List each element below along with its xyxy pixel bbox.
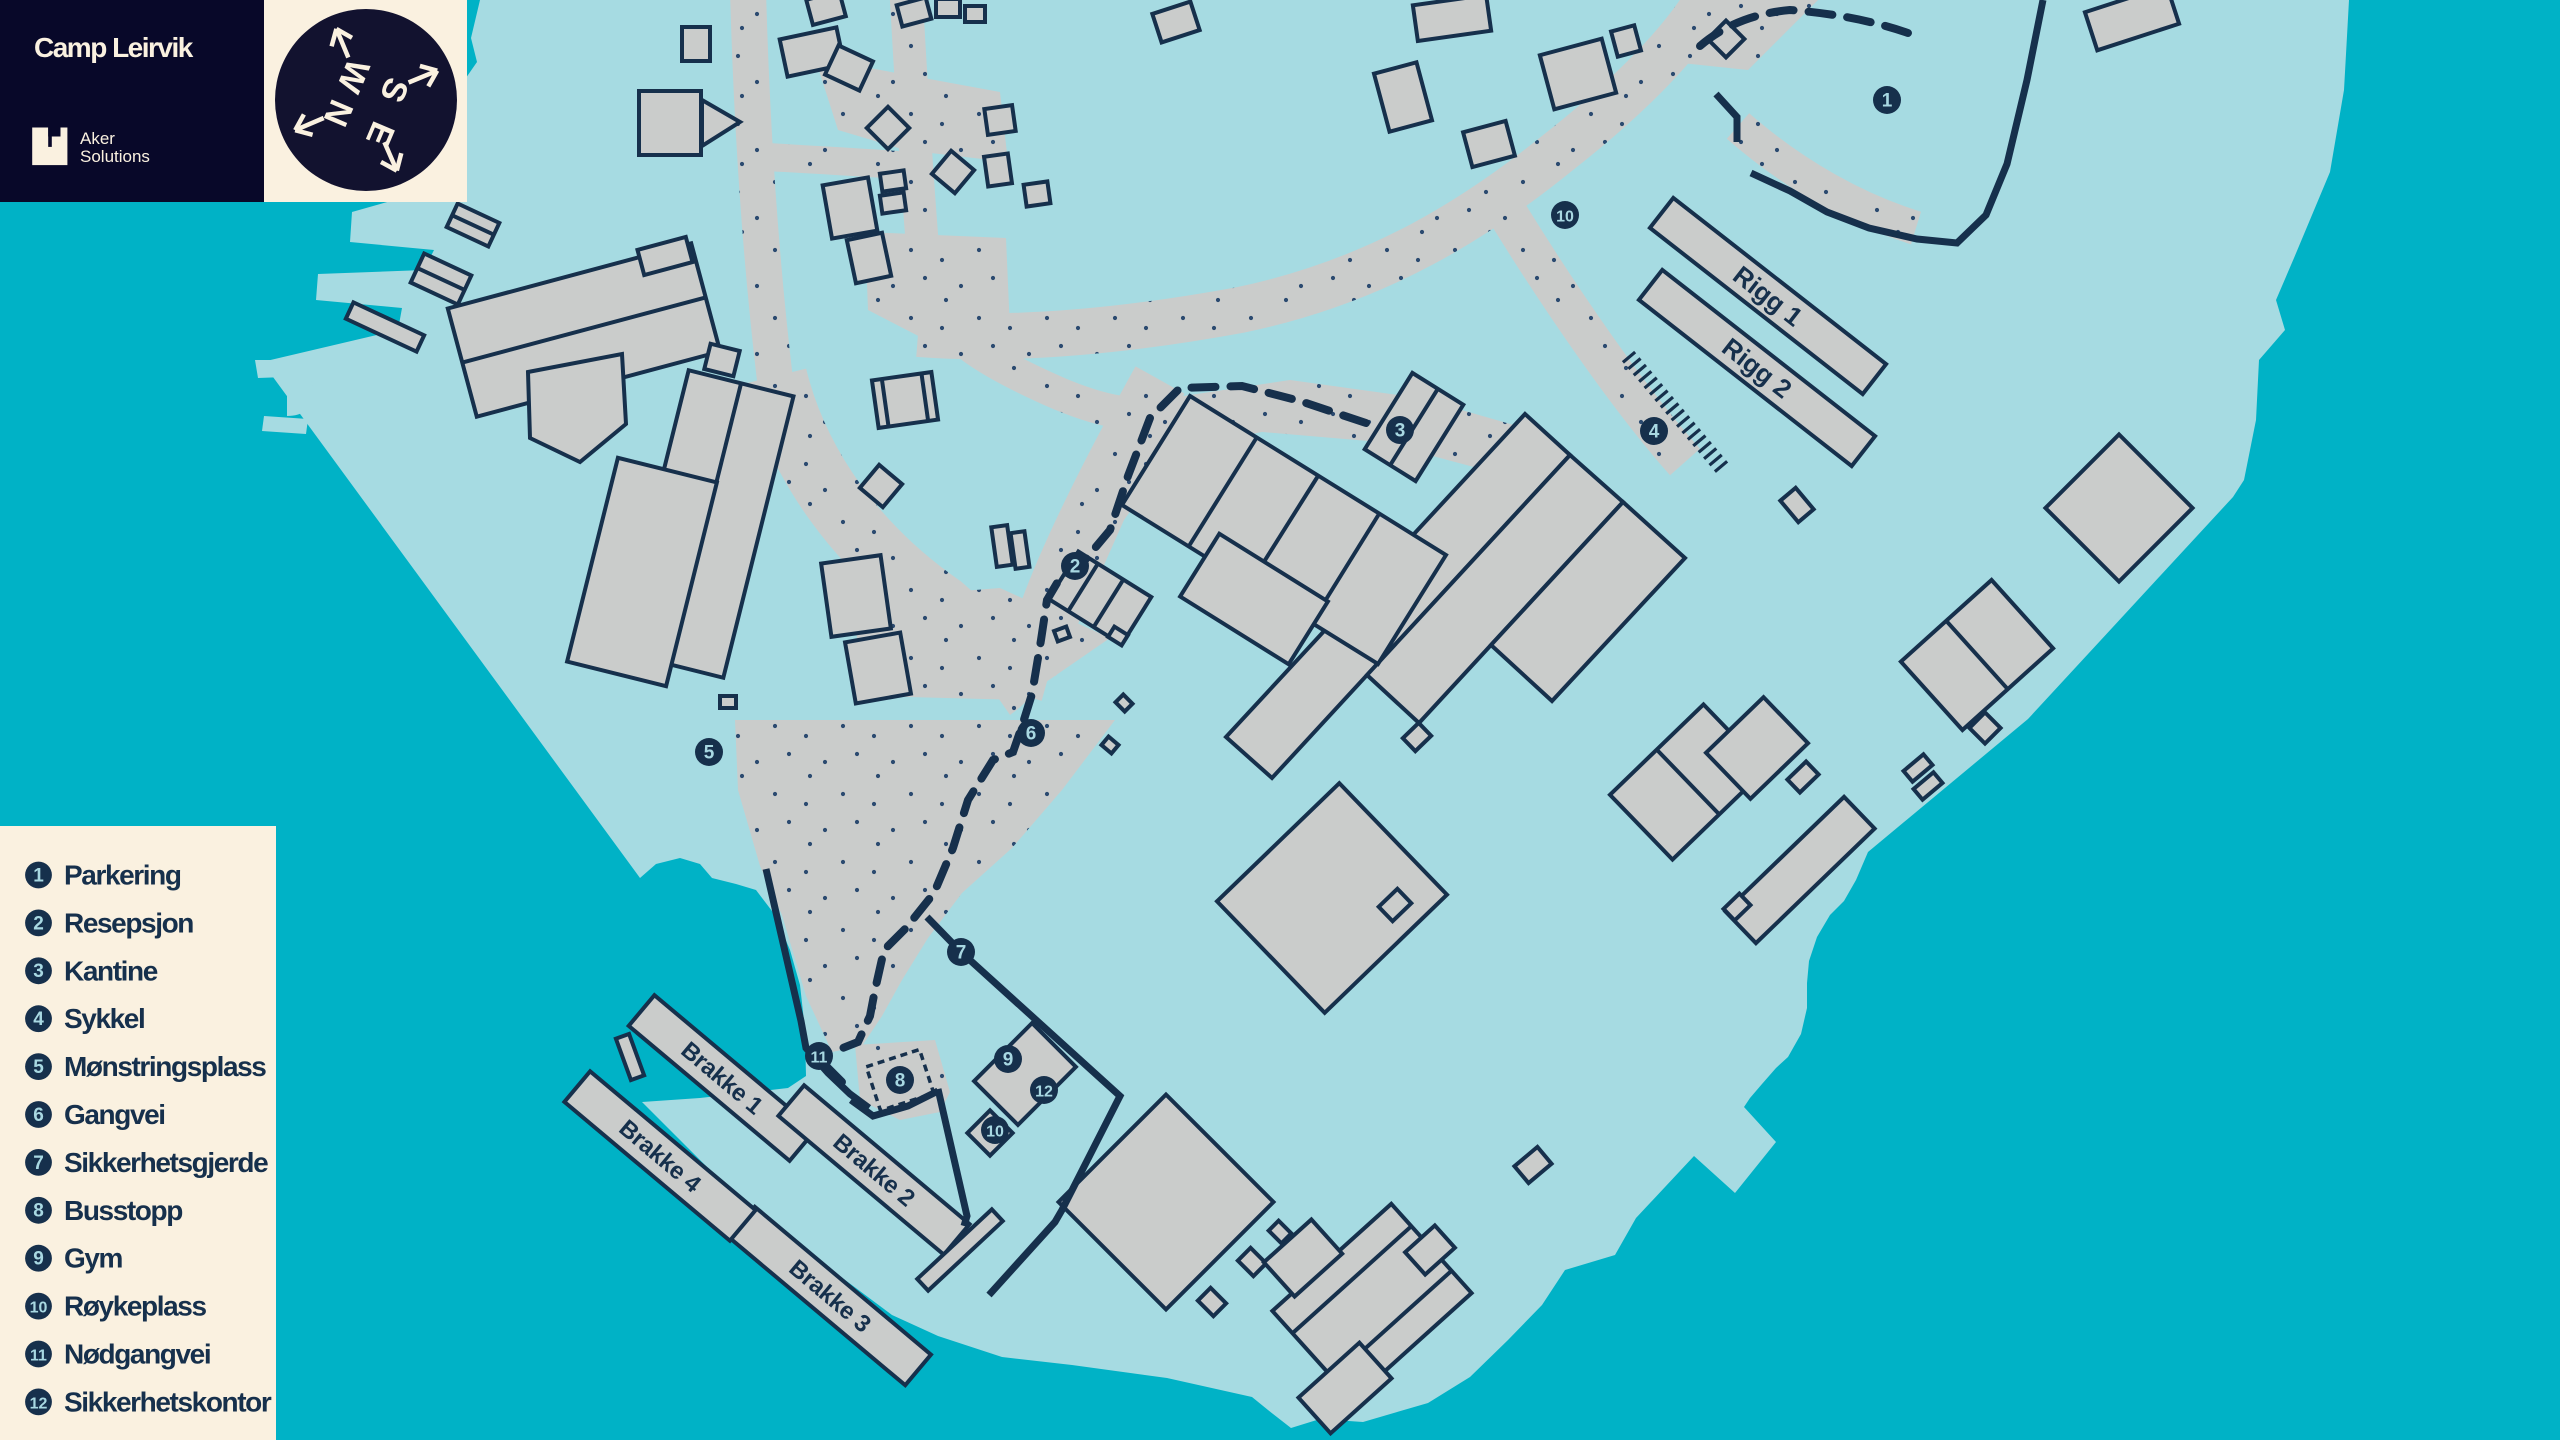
svg-text:9: 9 [1003,1050,1014,1071]
svg-text:11: 11 [30,1347,47,1364]
svg-text:2: 2 [33,913,44,934]
svg-text:Resepsjon: Resepsjon [64,907,193,938]
svg-text:Busstopp: Busstopp [64,1195,182,1226]
svg-text:11: 11 [811,1050,828,1067]
svg-text:12: 12 [30,1395,48,1412]
svg-text:6: 6 [33,1105,44,1126]
svg-text:10: 10 [986,1124,1004,1141]
svg-text:4: 4 [1649,422,1660,443]
svg-text:Nødgangvei: Nødgangvei [64,1339,210,1370]
svg-text:6: 6 [1026,724,1037,745]
svg-text:12: 12 [1035,1084,1053,1101]
svg-text:9: 9 [33,1249,44,1270]
svg-text:8: 8 [895,1071,906,1092]
svg-text:Sikkerhetsgjerde: Sikkerhetsgjerde [64,1147,268,1178]
svg-text:2: 2 [1070,557,1081,578]
svg-text:Aker: Aker [80,129,115,148]
svg-text:Røykeplass: Røykeplass [64,1291,206,1322]
svg-text:Sykkel: Sykkel [64,1003,144,1034]
svg-text:8: 8 [33,1201,44,1222]
svg-text:Mønstringsplass: Mønstringsplass [64,1051,266,1082]
svg-text:7: 7 [33,1153,44,1174]
svg-text:Gym: Gym [64,1243,123,1274]
svg-text:1: 1 [1882,91,1893,112]
svg-text:5: 5 [33,1057,44,1078]
svg-text:3: 3 [1395,421,1406,442]
svg-text:Sikkerhetskontor: Sikkerhetskontor [64,1386,272,1417]
svg-text:10: 10 [1556,209,1574,226]
svg-text:Kantine: Kantine [64,955,158,986]
svg-text:3: 3 [33,961,44,982]
svg-text:Solutions: Solutions [80,147,150,166]
svg-text:7: 7 [956,943,967,964]
svg-text:5: 5 [704,743,715,764]
svg-text:Parkering: Parkering [64,860,181,891]
svg-text:10: 10 [30,1300,48,1317]
svg-text:4: 4 [33,1009,44,1030]
svg-text:Camp Leirvik: Camp Leirvik [34,32,194,63]
svg-text:Gangvei: Gangvei [64,1099,165,1130]
svg-text:1: 1 [33,865,44,886]
